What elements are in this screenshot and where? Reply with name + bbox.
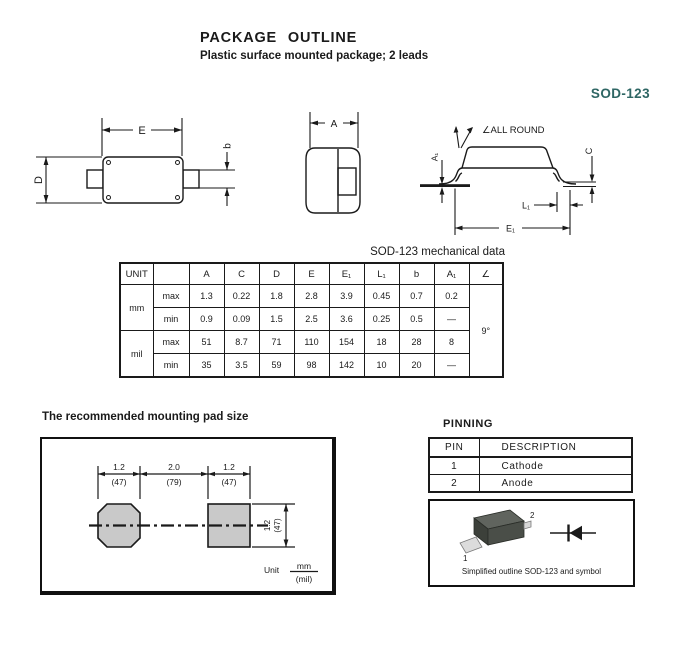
cell-mil-min-c: 3.5: [224, 354, 259, 378]
description-header-cell: DESCRIPTION: [479, 438, 632, 457]
mech-header-row: UNIT A C D E E₁ L₁ b A₁ ∠: [120, 263, 503, 285]
bound-cell-max: max: [153, 285, 189, 308]
pinning-row-1: 1 Cathode: [429, 457, 632, 475]
datasheet-page: PACKAGE OUTLINE Plastic surface mounted …: [0, 0, 674, 658]
cell-mm-max-c: 0.22: [224, 285, 259, 308]
mech-table-title: SOD-123 mechanical data: [260, 246, 505, 258]
cell-mil-max-d: 71: [259, 331, 294, 354]
dim-d-label: D: [33, 176, 45, 184]
col-header-a1: A₁: [434, 263, 469, 285]
bound-cell-min: min: [153, 354, 189, 378]
cell-mm-max-l1: 0.45: [364, 285, 399, 308]
mounting-pad-drawing: 1.2 (47) 2.0 (79) 1.2 (47) 1.2 (47) Unit…: [42, 439, 332, 591]
col-header-a: A: [189, 263, 224, 285]
col-header-unit: UNIT: [120, 263, 153, 285]
outline-caption: Simplified outline SOD-123 and symbol: [462, 567, 601, 576]
pinning-row-2: 2 Anode: [429, 475, 632, 493]
dim-b-label: b: [223, 143, 234, 149]
mech-row-mil-max: mil max 51 8.7 71 110 154 18 28 8: [120, 331, 503, 354]
dim-e-extension-lines: [102, 118, 182, 156]
dim-c-label: C: [584, 147, 594, 154]
col-header-e: E: [294, 263, 329, 285]
simplified-outline-box: 2 1 Simplified outline SOD-123 and symbo…: [428, 499, 635, 587]
pin-number-cell: 1: [429, 457, 479, 475]
cell-mm-max-d: 1.8: [259, 285, 294, 308]
mech-row-mm-min: min 0.9 0.09 1.5 2.5 3.6 0.25 0.5 —: [120, 308, 503, 331]
pin-description-cell: Anode: [479, 475, 632, 493]
pad-height-mm: 1.2: [263, 519, 272, 531]
cell-mm-min-d: 1.5: [259, 308, 294, 331]
unit-cell-mil: mil: [120, 331, 153, 378]
cell-mil-max-a: 51: [189, 331, 224, 354]
cell-mil-min-e: 98: [294, 354, 329, 378]
top-view-body: [103, 157, 183, 203]
col-header-b: b: [399, 263, 434, 285]
page-title: PACKAGE OUTLINE: [200, 30, 357, 46]
top-view-right-lead: [183, 170, 199, 188]
top-view-left-lead: [87, 170, 103, 188]
bound-cell-max: max: [153, 331, 189, 354]
angle-note-label: ∠ALL ROUND: [482, 125, 545, 136]
pin-number-cell: 2: [429, 475, 479, 493]
bound-cell-min: min: [153, 308, 189, 331]
cell-mil-min-b: 20: [399, 354, 434, 378]
col-header-bound: [153, 263, 189, 285]
pinning-table: PIN DESCRIPTION 1 Cathode 2 Anode: [428, 437, 633, 493]
cell-mm-min-l1: 0.25: [364, 308, 399, 331]
top-view-drawing: E D b: [33, 118, 235, 206]
end-view-body: [306, 148, 360, 213]
dim-a-label: A: [331, 119, 338, 130]
pin1-label: 1: [463, 554, 468, 563]
pad-dim-right-mil: (47): [221, 477, 236, 487]
dim-e-label: E: [138, 125, 145, 137]
package-lead-2: [524, 521, 531, 529]
dim-b-extension-lines: [199, 170, 235, 188]
cell-mm-max-b: 0.7: [399, 285, 434, 308]
pad-dim-center-mil: (79): [166, 477, 181, 487]
simplified-outline-drawing: 2 1 Simplified outline SOD-123 and symbo…: [430, 501, 633, 585]
mounting-pad-box: 1.2 (47) 2.0 (79) 1.2 (47) 1.2 (47) Unit…: [40, 437, 336, 595]
cell-mm-min-c: 0.09: [224, 308, 259, 331]
unit-label: Unit: [264, 565, 280, 575]
unit-numerator: mm: [297, 561, 311, 571]
cell-mm-max-e: 2.8: [294, 285, 329, 308]
dim-a-extension-lines: [310, 112, 358, 148]
side-view-drawing: ∠ALL ROUND A₁ C: [420, 125, 596, 235]
cell-mm-max-a1: 0.2: [434, 285, 469, 308]
col-header-d: D: [259, 263, 294, 285]
col-header-e1: E₁: [329, 263, 364, 285]
pin-header-cell: PIN: [429, 438, 479, 457]
dim-b-arrows: [225, 162, 230, 196]
cell-mm-min-a: 0.9: [189, 308, 224, 331]
pad-dim-left-mil: (47): [111, 477, 126, 487]
dim-l1-label: L₁: [522, 201, 530, 211]
unit-denominator: (mil): [296, 574, 313, 584]
page-subtitle: Plastic surface mounted package; 2 leads: [200, 50, 428, 62]
pinning-title: PINNING: [443, 418, 493, 430]
col-header-c: C: [224, 263, 259, 285]
cell-mm-max-a: 1.3: [189, 285, 224, 308]
dim-e1-label: E₁: [506, 224, 515, 234]
cell-mil-max-c: 8.7: [224, 331, 259, 354]
cell-mil-max-e: 110: [294, 331, 329, 354]
end-view-drawing: A: [306, 112, 360, 213]
dim-c-arrows: [590, 175, 595, 195]
dim-l1-arrows: [550, 203, 578, 208]
left-lead-bar: [420, 184, 470, 187]
diode-symbol: [550, 525, 596, 542]
mech-row-mm-max: mm max 1.3 0.22 1.8 2.8 3.9 0.45 0.7 0.2…: [120, 285, 503, 308]
cell-mil-min-e1: 142: [329, 354, 364, 378]
unit-cell-mm: mm: [120, 285, 153, 331]
package-name-label: SOD-123: [520, 86, 650, 101]
cell-mil-min-d: 59: [259, 354, 294, 378]
cell-mm-min-b: 0.5: [399, 308, 434, 331]
pad-dim-left-mm: 1.2: [113, 462, 125, 472]
pin-description-cell: Cathode: [479, 457, 632, 475]
package-3d-icon: 2 1: [460, 510, 535, 563]
col-header-angle: ∠: [469, 263, 503, 285]
pad-dim-right-mm: 1.2: [223, 462, 235, 472]
cell-mil-max-l1: 18: [364, 331, 399, 354]
cell-mil-min-a1: —: [434, 354, 469, 378]
package-drawings: E D b A: [30, 100, 664, 248]
pin2-label: 2: [530, 511, 535, 520]
cell-mm-min-e1: 3.6: [329, 308, 364, 331]
angle-value-cell: 9°: [469, 285, 503, 378]
package-lead-1: [460, 537, 482, 553]
pad-dim-center-mm: 2.0: [168, 462, 180, 472]
cell-mm-min-e: 2.5: [294, 308, 329, 331]
cell-mm-min-a1: —: [434, 308, 469, 331]
cell-mil-min-l1: 10: [364, 354, 399, 378]
col-header-l1: L₁: [364, 263, 399, 285]
pinning-header-row: PIN DESCRIPTION: [429, 438, 632, 457]
diode-triangle: [570, 526, 583, 540]
mechanical-data-table: UNIT A C D E E₁ L₁ b A₁ ∠ mm max 1.3 0.2…: [119, 262, 504, 378]
cell-mil-max-b: 28: [399, 331, 434, 354]
cell-mil-min-a: 35: [189, 354, 224, 378]
dim-a1-label: A₁: [430, 153, 440, 162]
pad-height-mil: (47): [273, 518, 282, 533]
cell-mil-max-e1: 154: [329, 331, 364, 354]
side-view-body: [462, 147, 553, 168]
mounting-pad-title: The recommended mounting pad size: [42, 411, 248, 423]
mech-row-mil-min: min 35 3.5 59 98 142 10 20 —: [120, 354, 503, 378]
cell-mil-max-a1: 8: [434, 331, 469, 354]
cell-mm-max-e1: 3.9: [329, 285, 364, 308]
